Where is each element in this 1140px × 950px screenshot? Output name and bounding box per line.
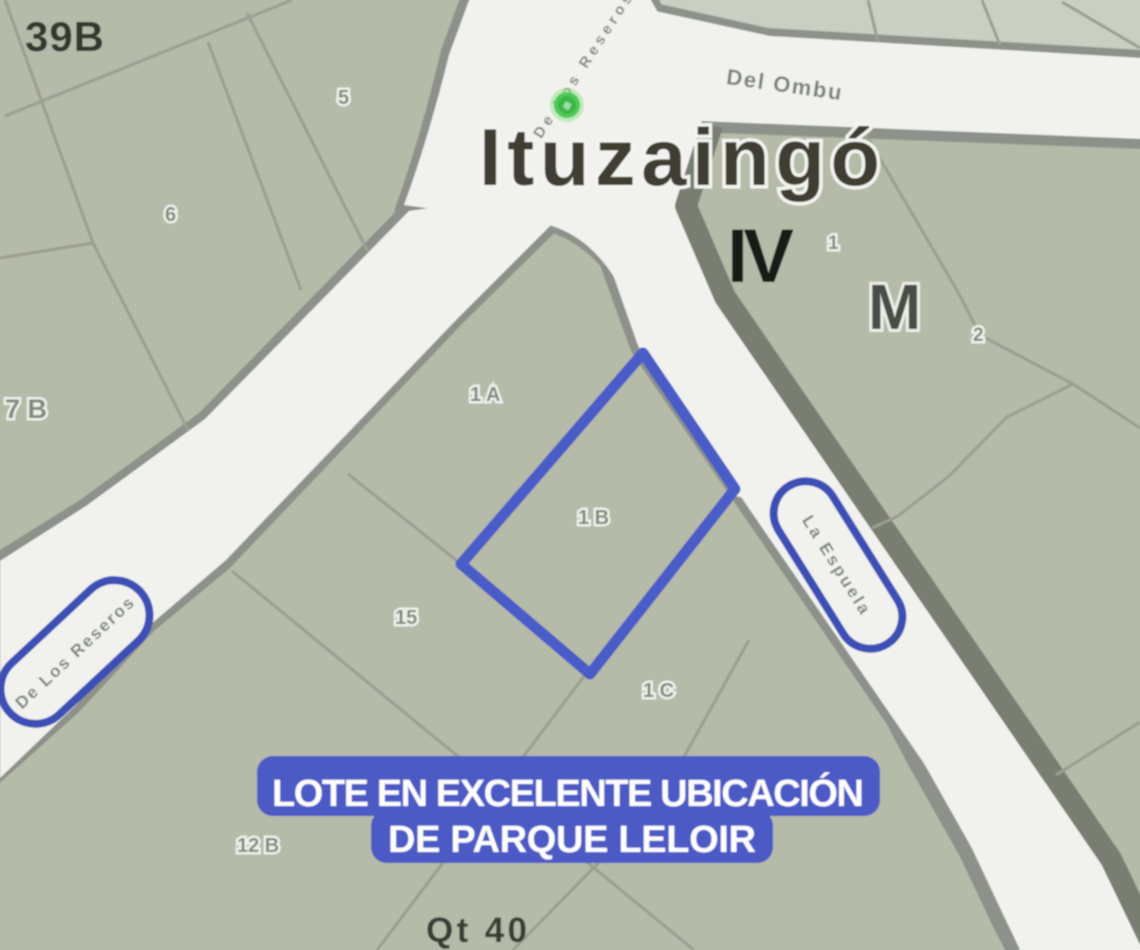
svg-text:Qt 40: Qt 40 — [426, 911, 527, 950]
svg-text:7 B: 7 B — [5, 394, 47, 424]
svg-text:39B: 39B — [25, 13, 104, 60]
svg-text:2: 2 — [973, 325, 984, 346]
svg-text:IV: IV — [727, 214, 794, 299]
svg-text:15: 15 — [395, 607, 417, 629]
svg-text:5: 5 — [338, 87, 349, 109]
svg-text:1: 1 — [828, 233, 839, 254]
svg-text:12 B: 12 B — [237, 835, 279, 857]
svg-text:Ituzaingó: Ituzaingó — [479, 113, 880, 203]
svg-text:LOTE EN EXCELENTE UBICACIÓN: LOTE EN EXCELENTE UBICACIÓN — [272, 771, 864, 815]
svg-text:DE PARQUE LELOIR: DE PARQUE LELOIR — [388, 819, 756, 861]
svg-text:M: M — [868, 271, 921, 343]
svg-text:1 C: 1 C — [643, 680, 674, 702]
svg-text:6: 6 — [165, 204, 176, 226]
svg-text:1 B: 1 B — [578, 507, 609, 529]
svg-text:1 A: 1 A — [470, 384, 500, 406]
